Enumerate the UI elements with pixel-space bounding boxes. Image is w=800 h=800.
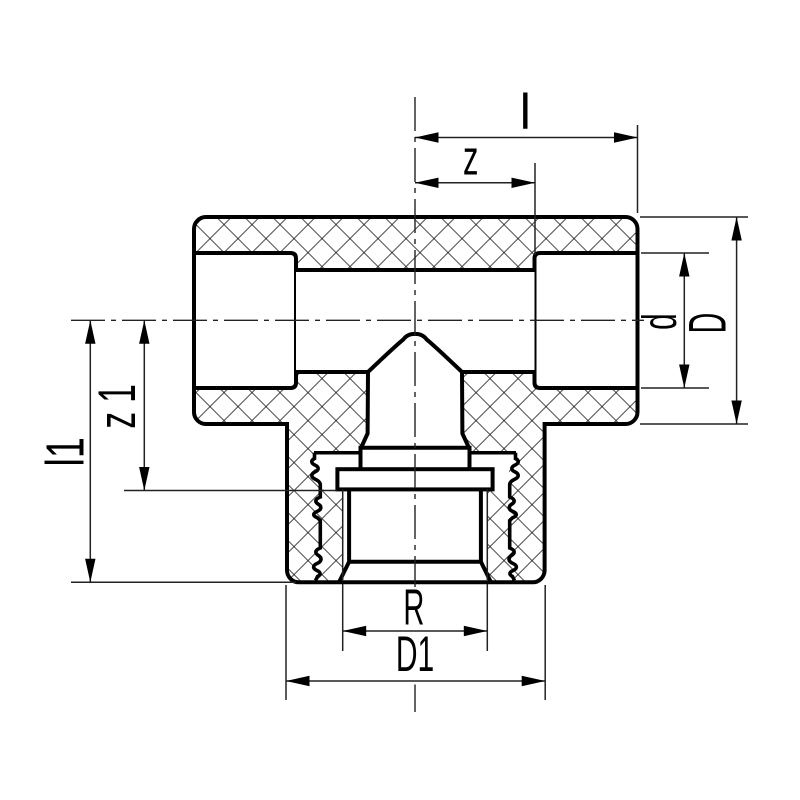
svg-text:z: z <box>463 130 478 185</box>
svg-text:D: D <box>678 313 738 334</box>
svg-text:D1: D1 <box>396 626 434 682</box>
svg-text:z 1: z 1 <box>88 384 147 429</box>
svg-text:l: l <box>520 84 531 140</box>
svg-text:l1: l1 <box>35 437 95 466</box>
